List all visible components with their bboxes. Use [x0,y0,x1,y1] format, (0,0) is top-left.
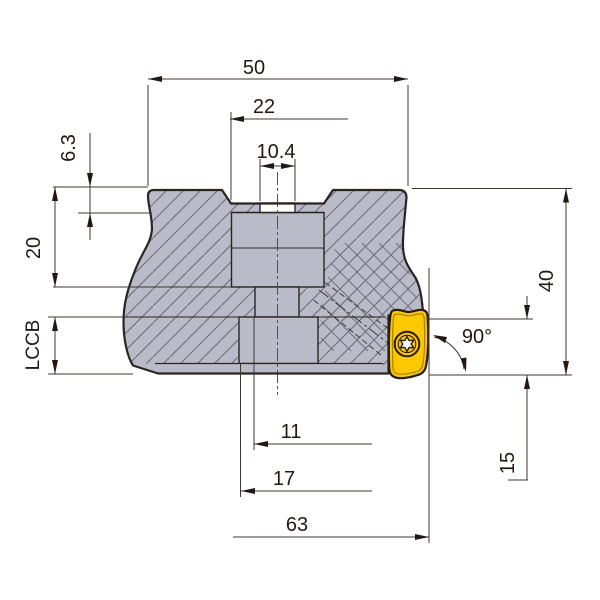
dim-20-label: 20 [23,237,45,259]
dim-63-label: 63 [286,514,308,536]
dim-6-3-label: 6.3 [58,134,80,162]
dim-50-label: 50 [243,57,265,79]
dim-15-label: 15 [497,452,519,474]
dim-17-label: 17 [273,468,295,490]
dim-11-label: 11 [281,421,302,443]
torx-screw [395,332,420,357]
dim-90-label: 90° [462,326,492,348]
dim-10-4-label: 10.4 [257,141,296,163]
dim-40-label: 40 [536,270,558,292]
dim-lccb-label: LCCB [23,320,44,371]
technical-drawing-canvas: 50 22 10.4 6.3 20 LCCB 40 90° 15 11 17 6… [0,0,600,600]
bottom-rim-band [134,364,383,374]
dim-22-label: 22 [253,96,275,118]
bore-lower-recess [239,317,318,364]
milling-insert [389,310,428,378]
cutter-body [124,172,424,395]
face-mill-section-drawing: 50 22 10.4 6.3 20 LCCB 40 90° 15 11 17 6… [0,0,600,600]
